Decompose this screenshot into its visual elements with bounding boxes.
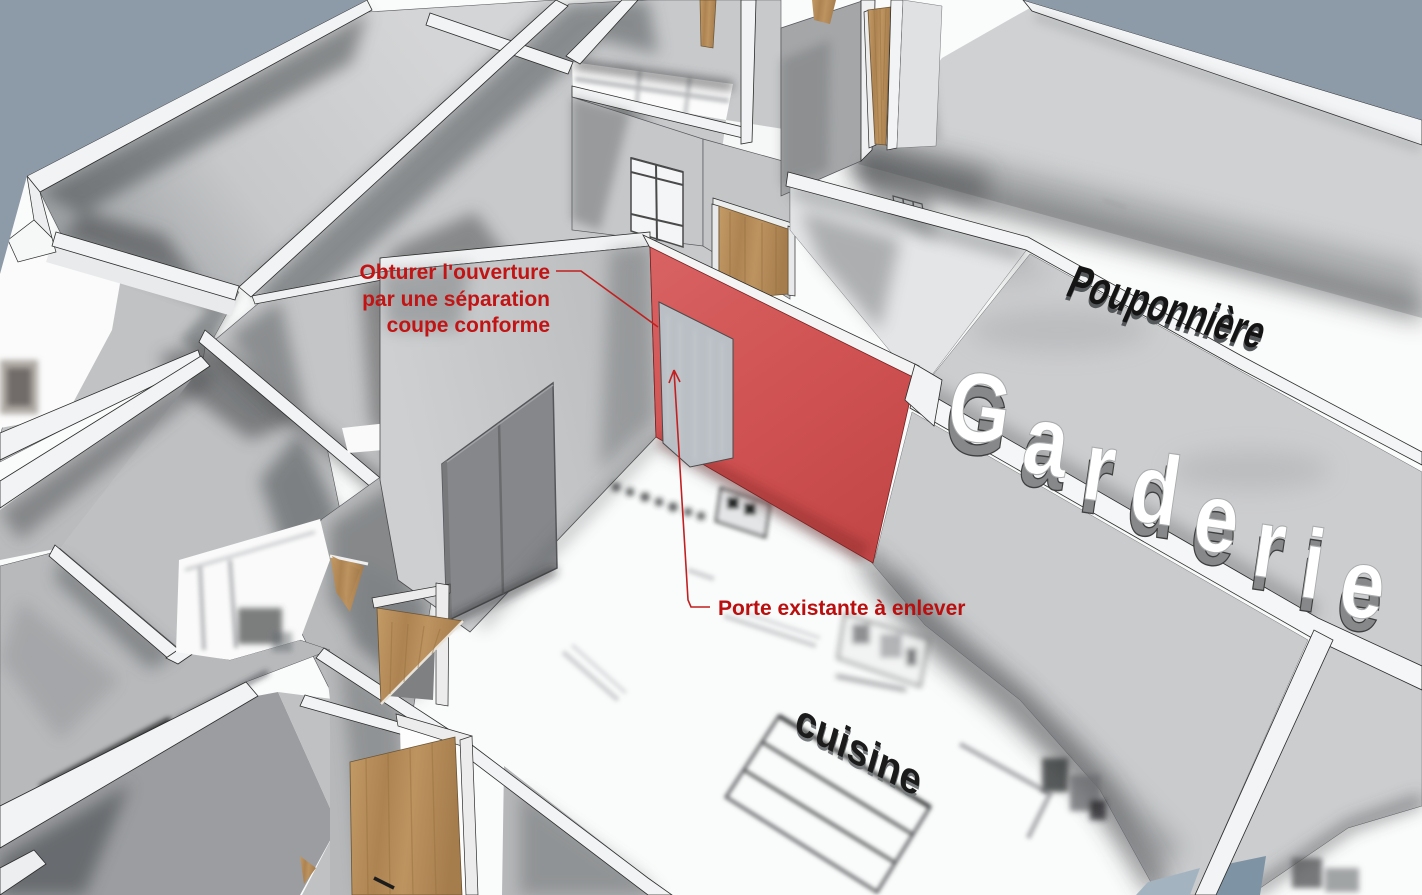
svg-text:Obturer l'ouverture: Obturer l'ouverture — [359, 261, 550, 284]
svg-text:Porte existante à enlever: Porte existante à enlever — [718, 597, 965, 620]
svg-text:coupe conforme: coupe conforme — [387, 314, 550, 337]
svg-text:par une séparation: par une séparation — [362, 288, 550, 311]
